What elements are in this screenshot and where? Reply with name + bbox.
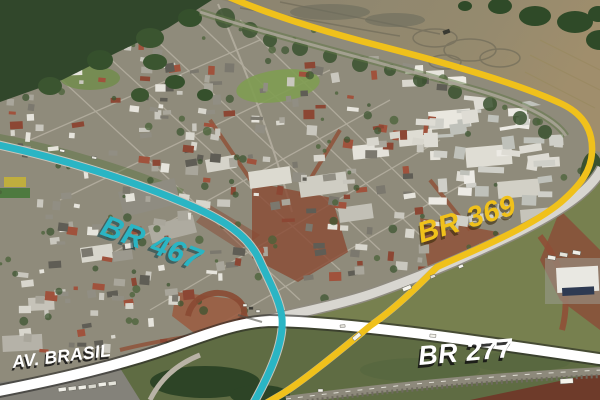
building [417,257,422,262]
building [160,98,168,102]
building [466,183,477,189]
building [287,77,295,86]
tree [374,127,381,134]
building [314,154,326,161]
building [6,99,14,106]
building [343,179,355,184]
building [405,229,415,239]
building [125,193,135,202]
tree [55,288,62,295]
building [279,117,285,123]
building [223,110,235,116]
building [210,153,221,163]
tree [388,225,397,234]
building [306,125,317,136]
building [460,170,470,175]
building [61,192,72,199]
tree [332,199,338,205]
building [300,90,308,96]
tree [390,265,398,273]
tree [493,231,498,236]
tree [233,192,239,198]
tree [265,58,271,64]
building [57,241,66,244]
building [524,137,545,143]
building [428,197,446,204]
tree [202,36,206,40]
building [371,70,377,80]
building [148,318,154,327]
tree [179,116,185,122]
tree [46,228,54,236]
building [438,178,448,192]
tree [234,154,240,160]
tree [268,46,276,54]
building [303,110,314,120]
tree [229,179,234,184]
building [74,286,78,290]
building [538,191,552,197]
building [329,272,341,281]
tree [198,159,203,164]
building [125,303,133,309]
tree [5,257,11,263]
building [87,289,97,298]
building [109,150,118,155]
building [433,150,447,158]
building [160,115,168,119]
building [218,273,222,280]
tree [22,94,29,101]
building [416,119,436,126]
building [475,186,489,197]
tree [465,131,471,137]
building [355,266,365,275]
building [185,132,194,140]
building [65,299,70,304]
building [158,104,163,108]
building [92,283,105,290]
building [330,72,340,83]
tree [145,123,153,131]
building [286,96,292,102]
building [123,186,131,193]
building [10,121,23,129]
building [292,99,299,108]
building [69,133,75,139]
building [29,94,34,100]
building [292,162,298,168]
tree [561,174,568,181]
building [304,62,315,69]
building [139,275,150,285]
building [153,160,161,166]
building [111,335,116,339]
tree [513,111,527,125]
building [315,105,325,109]
building [217,199,230,207]
building [350,250,360,258]
building [255,124,266,134]
tree [281,46,289,54]
building [232,247,245,256]
building [19,306,31,313]
building [554,142,563,148]
tree [177,128,185,136]
building [270,201,281,210]
building [400,130,407,140]
tree [41,231,45,235]
building [208,66,215,75]
building [10,130,15,136]
building [461,109,479,124]
building [37,199,44,208]
building [81,248,93,258]
tree [132,285,140,293]
building [52,201,61,211]
tree [201,182,209,190]
building [21,279,34,287]
building [501,136,515,151]
tree [329,217,337,225]
building [225,63,235,72]
tree [239,155,247,163]
tree [226,95,234,103]
building [112,295,124,301]
tree [354,185,360,191]
building [155,84,165,91]
building [145,196,150,202]
building [79,80,84,84]
building [235,258,242,266]
building [138,156,150,164]
building [355,244,367,251]
tree [12,271,18,277]
building [203,178,211,183]
building [248,154,253,159]
building [478,166,504,173]
tree [132,318,139,325]
tree [215,259,218,262]
building [177,210,188,220]
tree [537,119,543,125]
building [281,199,290,206]
building [340,225,348,231]
tree [390,116,399,125]
building [45,215,52,220]
building [394,212,404,219]
tree [367,103,371,107]
building [417,145,424,153]
building [25,132,31,142]
tree [323,149,327,153]
building [403,173,413,179]
tree [321,118,324,121]
building [522,195,537,206]
building [98,77,106,82]
tree [502,105,507,110]
building [39,269,44,274]
building [251,117,263,121]
tree [268,235,277,244]
building [449,122,467,135]
building [263,156,271,162]
building [282,218,295,222]
tree [167,283,171,287]
building [183,145,195,153]
building [344,195,350,199]
tree [92,266,98,272]
building [35,296,44,304]
tree [306,71,314,79]
tree [126,317,133,324]
building [376,185,386,195]
building [140,76,150,81]
building [35,124,43,131]
building [192,123,197,131]
building [58,222,69,231]
tree [347,171,351,175]
tree [316,144,321,149]
building [367,227,373,235]
tree [364,111,372,119]
tree [327,140,331,144]
building [48,261,61,269]
building [454,146,466,160]
building [387,251,394,261]
tree [130,292,136,298]
building [303,177,307,181]
building [365,150,377,158]
tree [132,269,137,274]
aerial-photo: BR 467 BR 467 BR 369 BR 369 BR 277 BR 27… [0,0,600,400]
tree [178,301,184,307]
building [163,110,171,115]
building [204,75,210,83]
building [357,261,363,266]
building [28,104,35,111]
building [210,250,222,254]
building [306,208,316,213]
aerial-roads-graphic: BR 467 BR 467 BR 369 BR 369 BR 277 BR 27… [0,0,600,400]
tree [494,183,498,187]
building [99,293,104,300]
building [366,137,379,147]
building [488,115,499,123]
building [77,329,86,337]
building [27,114,35,121]
building [458,187,472,196]
building [9,111,16,114]
tree [273,244,277,248]
building [183,289,195,300]
building [129,105,139,112]
building [254,193,259,196]
building [533,160,555,167]
building [414,207,423,215]
tree [112,96,117,101]
tree [147,177,154,184]
building [23,333,31,342]
tree [335,91,338,94]
building [177,91,183,95]
building [212,95,221,105]
building [305,223,313,231]
tree [203,127,212,136]
tree [122,195,125,198]
building [263,83,268,92]
building [114,278,126,286]
building [424,133,438,148]
tree [199,306,208,315]
tree [45,313,52,320]
tree [344,136,350,142]
building [436,84,447,91]
building [66,226,77,235]
building [160,163,169,173]
tree [538,125,552,139]
building [90,310,98,316]
tree [255,273,263,281]
building [313,243,325,249]
tree [374,255,380,261]
building [215,128,220,135]
tree [19,317,28,326]
